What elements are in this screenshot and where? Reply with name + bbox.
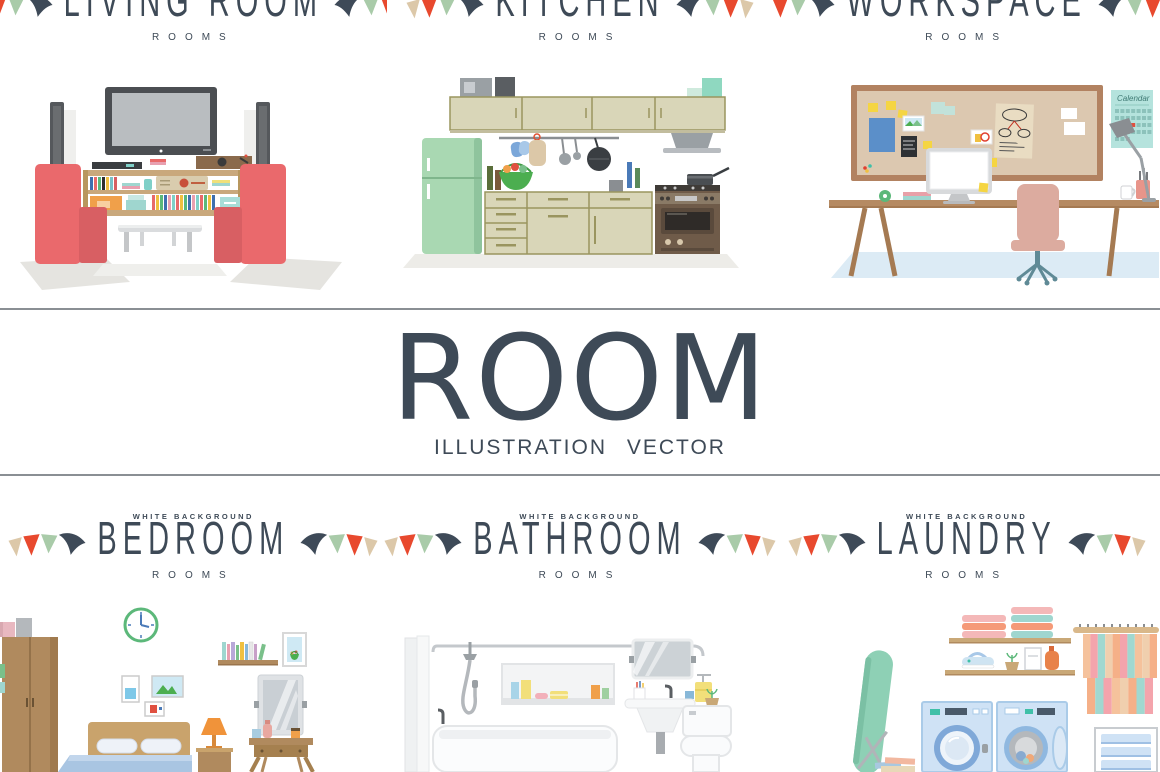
- range-hood: [663, 130, 721, 153]
- shelf-books: [90, 177, 152, 190]
- shower-wall: [405, 636, 429, 772]
- iron: [962, 654, 994, 669]
- workspace-title: WORKSPACE: [846, 0, 1086, 29]
- laundry-title: LAUNDRY: [877, 514, 1057, 567]
- drawer-unit: [1095, 728, 1157, 772]
- bathroom-title: BATHROOM: [473, 514, 686, 567]
- bunting-flags-icon: [333, 0, 387, 20]
- bunting-flags-icon: [7, 531, 87, 558]
- bathtub: [433, 710, 617, 772]
- panel-bedroom: WHITE BACKGROUND BEDROOM ROOMS: [0, 498, 387, 772]
- laundry-header: WHITE BACKGROUND LAUNDRY ROOMS: [773, 498, 1160, 581]
- living-room-illustration: [0, 52, 386, 296]
- panel-living-room: LIVING ROOM ROOMS: [0, 0, 387, 300]
- bunting-flags-icon: [405, 0, 485, 20]
- pinned-photo: [903, 116, 924, 131]
- laundry-subtitle: ROOMS: [773, 570, 1160, 581]
- stove: [655, 185, 720, 254]
- bottom-row: WHITE BACKGROUND BEDROOM ROOMS: [0, 498, 1160, 772]
- bunting-flags-icon: [299, 531, 379, 558]
- bathroom-subtitle: ROOMS: [387, 570, 774, 581]
- mind-map-note: [994, 103, 1034, 158]
- hanging-rod: [1073, 624, 1159, 714]
- armchair-right: [214, 164, 286, 264]
- record-collection: [152, 195, 215, 210]
- media-shelf: [83, 155, 252, 217]
- bunting-flags-icon: [697, 531, 777, 558]
- book-shelf: [218, 642, 278, 666]
- fridge: [422, 138, 482, 254]
- workspace-subtitle: ROOMS: [773, 32, 1160, 43]
- calendar-label: Calendar: [1117, 94, 1150, 103]
- living-room-title: LIVING ROOM: [64, 0, 323, 29]
- washing-machine-open: [997, 702, 1067, 772]
- laundry-illustration: [773, 598, 1159, 772]
- panel-laundry: WHITE BACKGROUND LAUNDRY ROOMS: [773, 498, 1160, 772]
- bedroom-illustration: [0, 598, 386, 772]
- bedroom-header: WHITE BACKGROUND BEDROOM ROOMS: [0, 498, 387, 581]
- ironing-board: [852, 649, 915, 772]
- kitchen-subtitle: ROOMS: [387, 32, 774, 43]
- panel-bathroom: WHITE BACKGROUND BATHROOM ROOMS: [387, 498, 774, 772]
- living-room-subtitle: ROOMS: [0, 32, 387, 43]
- bathroom-illustration: [387, 598, 773, 772]
- hero-subtitle: ILLUSTRATION VECTOR: [434, 436, 726, 460]
- living-room-header: LIVING ROOM ROOMS: [0, 0, 387, 52]
- radio: [156, 176, 208, 190]
- kitchen-title: KITCHEN: [495, 0, 664, 29]
- bunting-flags-icon: [383, 531, 463, 558]
- items-on-cabinet: [460, 77, 722, 98]
- nightstand-and-lamp: [196, 718, 233, 772]
- upper-cabinets: [450, 97, 725, 133]
- kitchen-illustration: [387, 52, 773, 296]
- bedroom-subtitle: ROOMS: [0, 570, 387, 581]
- bedroom-title: BEDROOM: [97, 514, 289, 567]
- stamped-photo: [971, 130, 992, 144]
- shelf-plant: [1005, 653, 1019, 670]
- laundry-shelves: [945, 607, 1075, 676]
- dressing-table: [249, 675, 313, 772]
- towel-ring: [695, 674, 712, 702]
- monitor: [926, 148, 992, 204]
- counter-items: [487, 162, 640, 192]
- bunting-flags-icon: [0, 0, 54, 20]
- mug: [1121, 186, 1135, 199]
- tv: [105, 87, 217, 155]
- workspace-header: WORKSPACE ROOMS: [773, 0, 1160, 52]
- bunting-flags-icon: [1097, 0, 1160, 20]
- bunting-flags-icon: [773, 0, 836, 20]
- framed-basket-picture: [283, 633, 306, 666]
- bunting-flags-icon: [675, 0, 755, 20]
- panel-workspace: WORKSPACE ROOMS: [773, 0, 1160, 300]
- bed: [58, 722, 192, 772]
- wardrobe: [0, 618, 58, 772]
- shower-head: [462, 642, 477, 713]
- pan-on-stove: [687, 168, 729, 185]
- workspace-illustration: Calendar: [773, 52, 1159, 296]
- floor-shadow: [403, 254, 739, 268]
- recessed-shelf: [502, 664, 614, 704]
- top-row: LIVING ROOM ROOMS: [0, 0, 1160, 300]
- washing-machine-closed: [922, 702, 992, 772]
- bunting-flags-icon: [1067, 531, 1147, 558]
- mirror: [629, 640, 696, 678]
- lower-cabinets: [485, 192, 652, 254]
- wall-calendar: Calendar: [1111, 90, 1153, 148]
- bunting-flags-icon: [787, 531, 867, 558]
- hanging-towels: [1083, 634, 1157, 714]
- kitchen-header: KITCHEN ROOMS: [387, 0, 774, 52]
- wall-clock: [125, 609, 157, 641]
- hero-title: ROOM: [391, 324, 769, 432]
- bathroom-header: WHITE BACKGROUND BATHROOM ROOMS: [387, 498, 774, 581]
- wall-pictures: [122, 676, 183, 716]
- panel-kitchen: KITCHEN ROOMS: [387, 0, 774, 300]
- coffee-table: [118, 225, 202, 252]
- chalk-note: [901, 136, 917, 157]
- hero-band: ROOM ILLUSTRATION VECTOR: [0, 308, 1160, 476]
